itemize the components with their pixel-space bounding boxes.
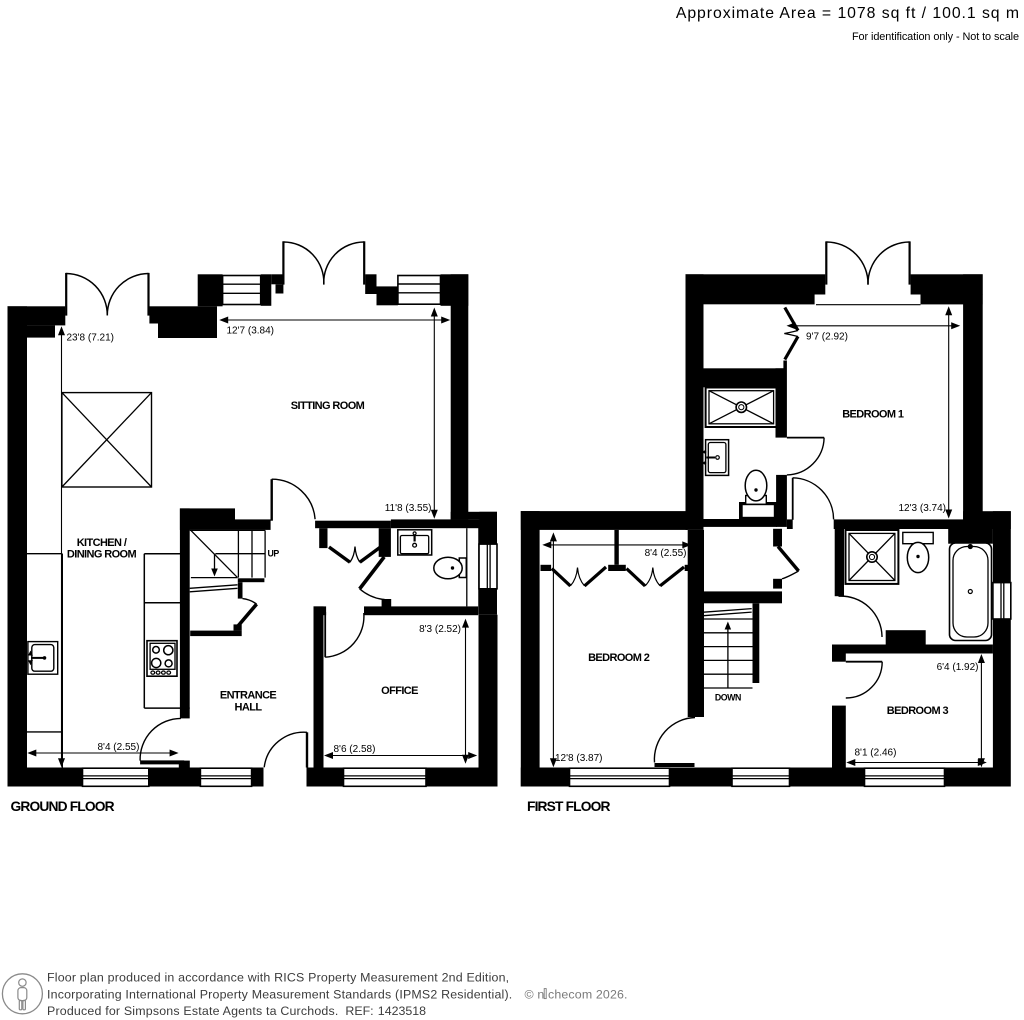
svg-text:DOWN: DOWN [715, 693, 741, 703]
svg-text:UP: UP [268, 549, 280, 559]
svg-text:Floor plan produced in accorda: Floor plan produced in accordance with R… [47, 971, 509, 985]
svg-text:Produced for Simpsons Estate A: Produced for Simpsons Estate Agents ta C… [47, 1004, 339, 1018]
svg-text:BEDROOM 1: BEDROOM 1 [842, 409, 904, 421]
svg-text:KITCHEN /: KITCHEN / [77, 537, 127, 549]
svg-text:8'4 (2.55): 8'4 (2.55) [645, 548, 687, 559]
svg-text:SITTING ROOM: SITTING ROOM [291, 400, 365, 412]
svg-text:REF:: REF: [345, 1004, 373, 1018]
svg-text:8'1 (2.46): 8'1 (2.46) [855, 748, 897, 759]
svg-text:HALL: HALL [235, 702, 263, 714]
svg-text:8'6 (2.58): 8'6 (2.58) [334, 744, 376, 755]
svg-text:12'3 (3.74): 12'3 (3.74) [899, 503, 947, 514]
svg-text:GROUND FLOOR: GROUND FLOOR [11, 799, 115, 814]
svg-text:23'8 (7.21): 23'8 (7.21) [67, 333, 115, 344]
svg-text:11'8 (3.55): 11'8 (3.55) [385, 503, 432, 514]
svg-text:8'4 (2.55): 8'4 (2.55) [98, 742, 140, 753]
svg-text:12'7 (3.84): 12'7 (3.84) [227, 326, 275, 337]
svg-text:6'4 (1.92): 6'4 (1.92) [937, 662, 979, 673]
svg-text:DINING ROOM: DINING ROOM [67, 549, 137, 561]
svg-text:Incorporating International Pr: Incorporating International Property Mea… [47, 988, 512, 1002]
svg-text:For identification only - Not: For identification only - Not to scale [852, 31, 1019, 43]
svg-text:8'3 (2.52): 8'3 (2.52) [419, 624, 461, 635]
svg-text:FIRST FLOOR: FIRST FLOOR [527, 799, 611, 814]
svg-text:© n: © n [525, 988, 545, 1002]
svg-text:ENTRANCE: ENTRANCE [220, 690, 277, 702]
svg-text:9'7 (2.92): 9'7 (2.92) [806, 332, 848, 343]
svg-text:BEDROOM 2: BEDROOM 2 [588, 652, 650, 664]
svg-text:checom 2026.: checom 2026. [548, 988, 628, 1002]
svg-text:BEDROOM 3: BEDROOM 3 [887, 705, 949, 717]
svg-text:OFFICE: OFFICE [381, 685, 418, 697]
svg-text:12'8 (3.87): 12'8 (3.87) [555, 753, 603, 764]
svg-text:Approximate Area = 1078 sq ft: Approximate Area = 1078 sq ft / 100.1 sq… [676, 5, 1020, 22]
svg-text:1423518: 1423518 [378, 1004, 426, 1018]
